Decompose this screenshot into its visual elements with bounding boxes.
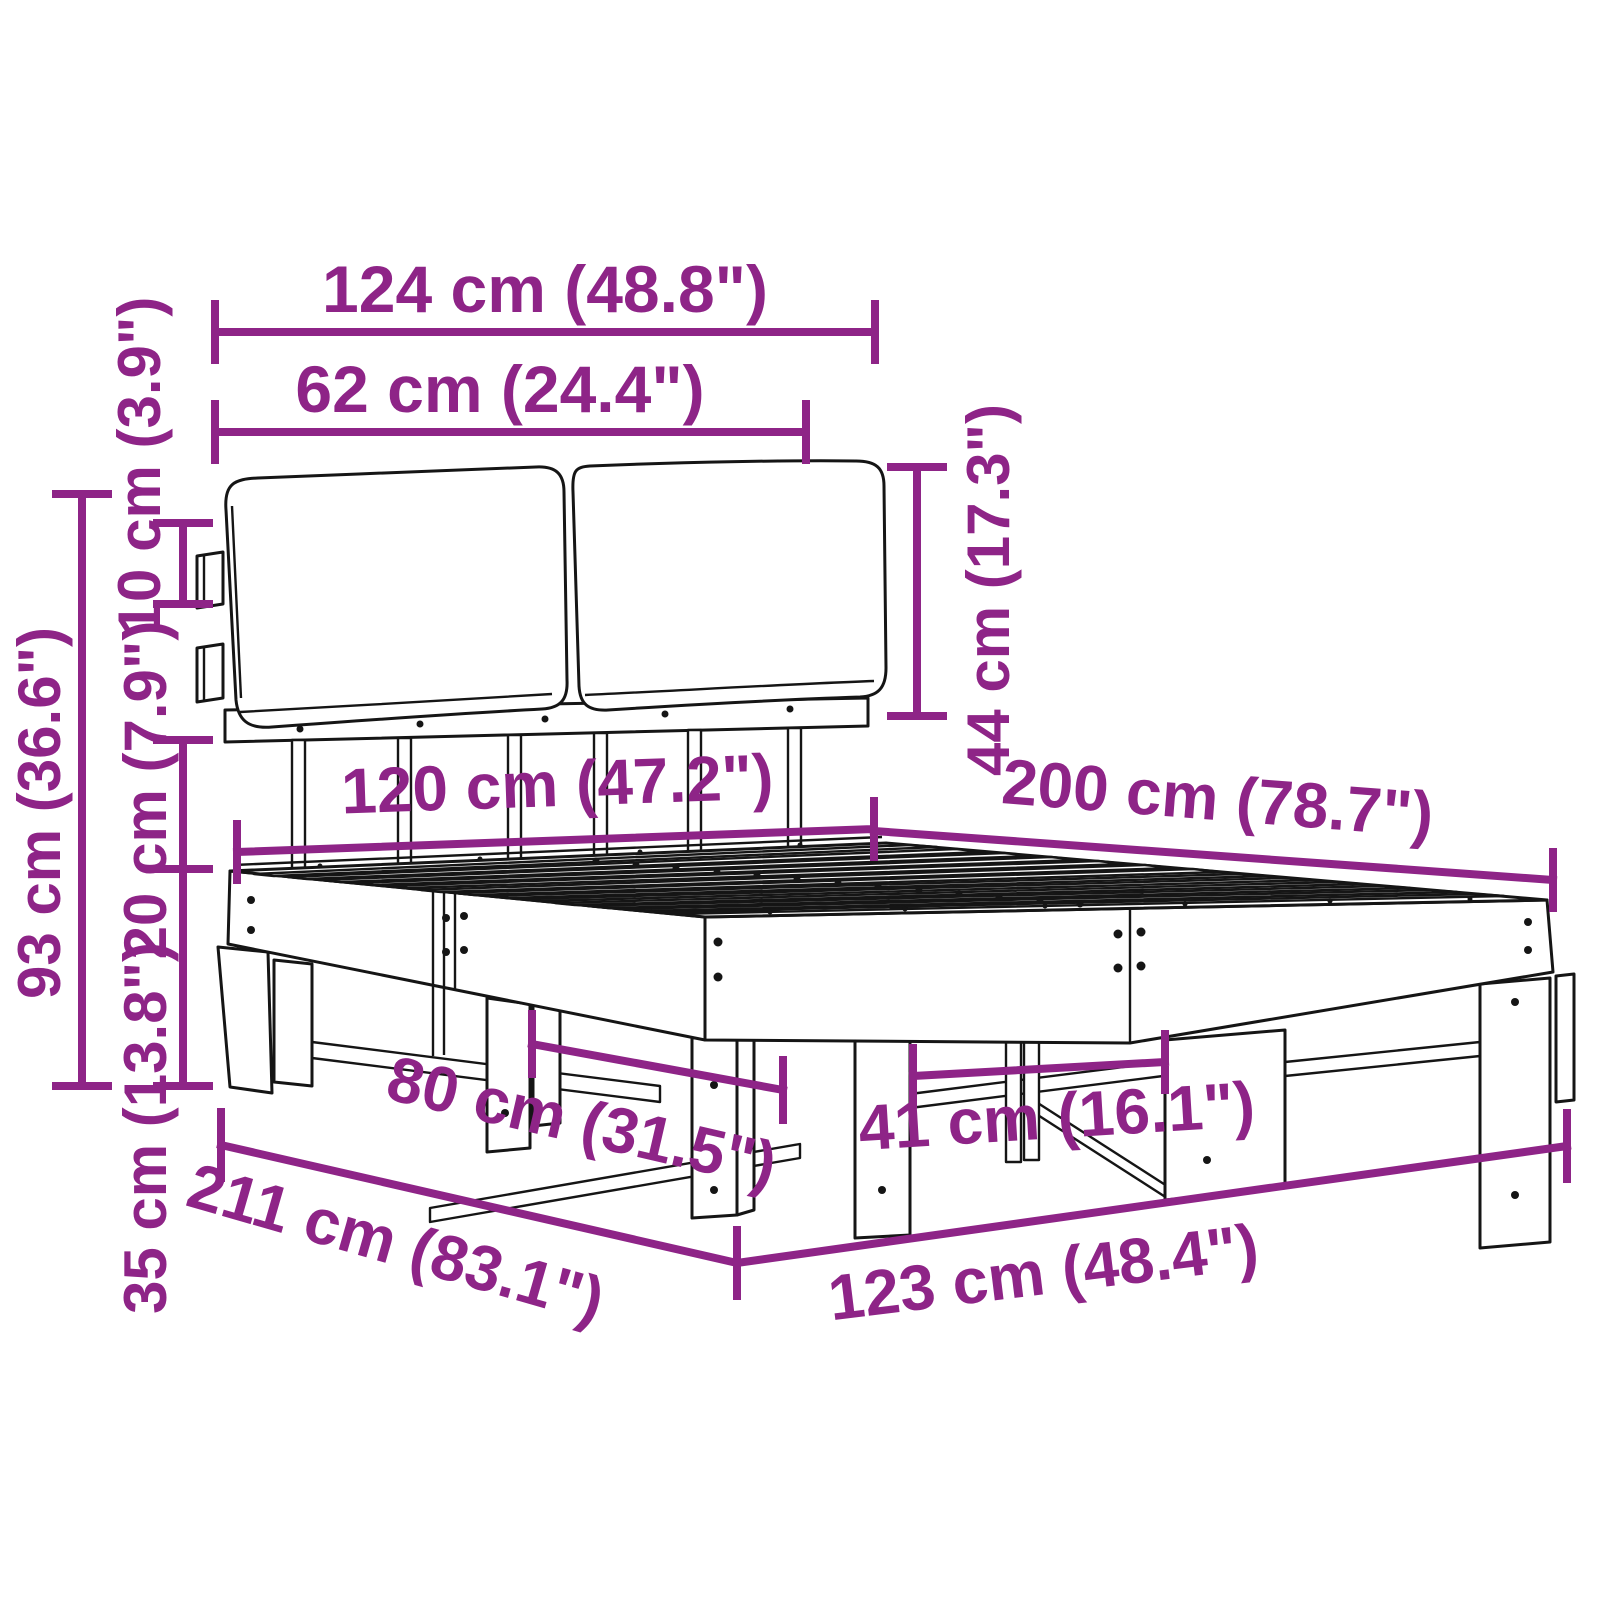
headboard-cushion-right [573,461,886,710]
wall-bracket-bottom [197,644,223,702]
dimension-cushion-height [891,467,943,716]
dim-label-bracket-offset: 10 cm (3.9") [106,297,173,636]
rail-screw [662,711,669,718]
dim-label-headboard-width: 124 cm (48.8") [322,252,768,326]
headboard-cushion-left [226,467,567,727]
rail-screw [787,706,794,713]
cross-rail-foot-right [1285,1042,1480,1076]
dim-label-leg-height: 35 cm (13.8") [112,942,179,1314]
leg-foot-right-back [1556,974,1574,1102]
bed-frame-drawing: 124 cm (48.8") 62 cm (24.4") 44 cm (17.3… [0,0,1600,1600]
leg-head-left-back [274,960,312,1086]
headboard-cushions [226,461,886,728]
dim-label-overall-length: 211 cm (83.1") [180,1149,612,1336]
dim-label-overall-height: 93 cm (36.6") [6,627,73,999]
rail-screw [542,716,549,723]
leg-foot-right [1480,978,1550,1248]
dim-label-bed-length: 200 cm (78.7") [999,745,1436,851]
dim-label-cushion-height: 44 cm (17.3") [955,404,1022,776]
rail-screw [417,721,424,728]
wall-bracket-top [197,552,223,608]
dim-label-frame-height: 20 cm (7.9") [112,621,179,960]
dim-label-cushion-width: 62 cm (24.4") [295,352,704,426]
dimension-diagram: 124 cm (48.8") 62 cm (24.4") 44 cm (17.3… [0,0,1600,1600]
dim-label-bed-width: 120 cm (47.2") [340,740,775,827]
leg-head-left [218,947,272,1093]
